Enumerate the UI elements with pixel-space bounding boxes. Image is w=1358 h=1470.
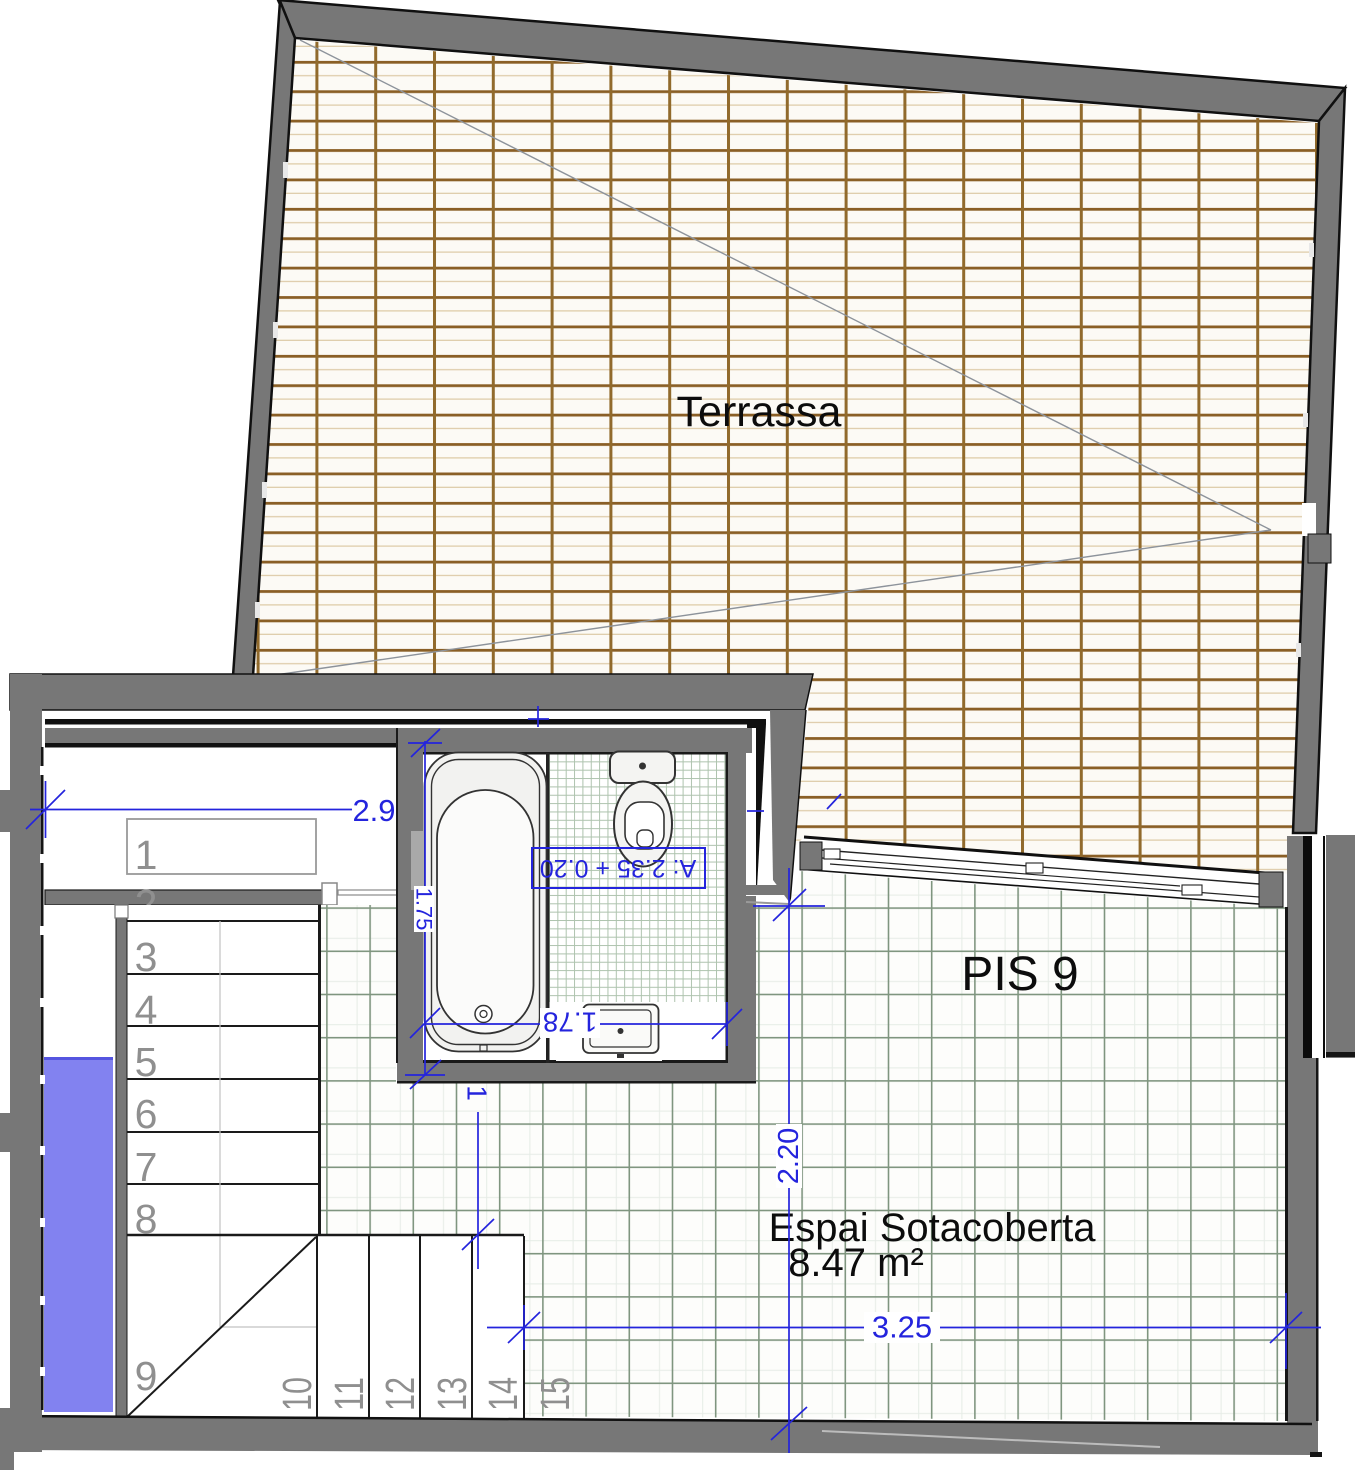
svg-text:Terrassa: Terrassa [677,388,842,436]
svg-text:8: 8 [135,1196,158,1242]
svg-text:5: 5 [135,1039,158,1085]
svg-text:2.9: 2.9 [352,793,395,828]
svg-text:3: 3 [135,934,158,980]
svg-text:1: 1 [135,832,158,878]
svg-text:1: 1 [462,1085,493,1101]
svg-text:4: 4 [135,987,158,1033]
svg-text:A: 2.35 + 0.20: A: 2.35 + 0.20 [540,854,696,882]
svg-text:13: 13 [429,1377,475,1411]
svg-text:7: 7 [135,1144,158,1190]
svg-text:6: 6 [135,1091,158,1137]
svg-text:3.25: 3.25 [872,1310,932,1345]
svg-text:11: 11 [326,1377,372,1411]
svg-text:PIS 9: PIS 9 [961,948,1078,1001]
svg-text:14: 14 [480,1377,526,1411]
svg-text:9: 9 [135,1353,158,1399]
svg-text:2.20: 2.20 [773,1128,805,1184]
svg-text:15: 15 [532,1377,578,1411]
svg-text:12: 12 [377,1377,423,1411]
svg-text:1.78: 1.78 [543,1007,598,1038]
svg-text:8.47 m²: 8.47 m² [788,1241,924,1285]
svg-text:10: 10 [274,1377,320,1411]
svg-text:1.75: 1.75 [412,888,437,931]
